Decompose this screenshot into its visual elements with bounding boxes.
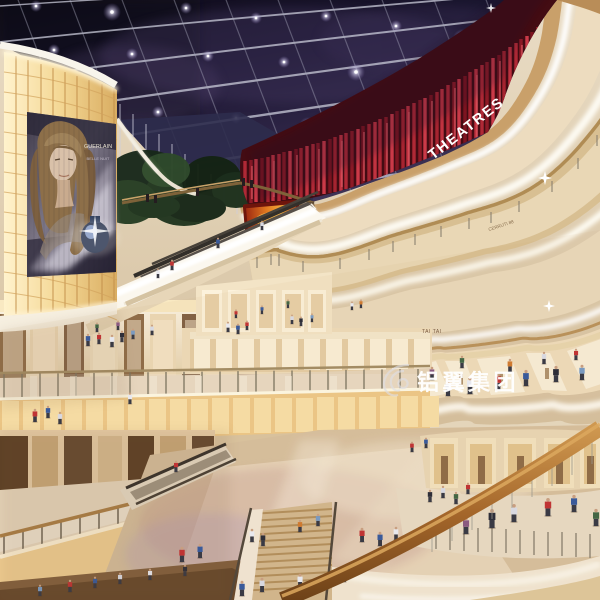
svg-text:TAI TAI: TAI TAI [422,329,442,335]
svg-text:BELLE NUIT: BELLE NUIT [87,156,110,161]
svg-text:GUERLAIN: GUERLAIN [84,144,112,150]
svg-text:铝翼集团: 铝翼集团 [417,370,519,395]
